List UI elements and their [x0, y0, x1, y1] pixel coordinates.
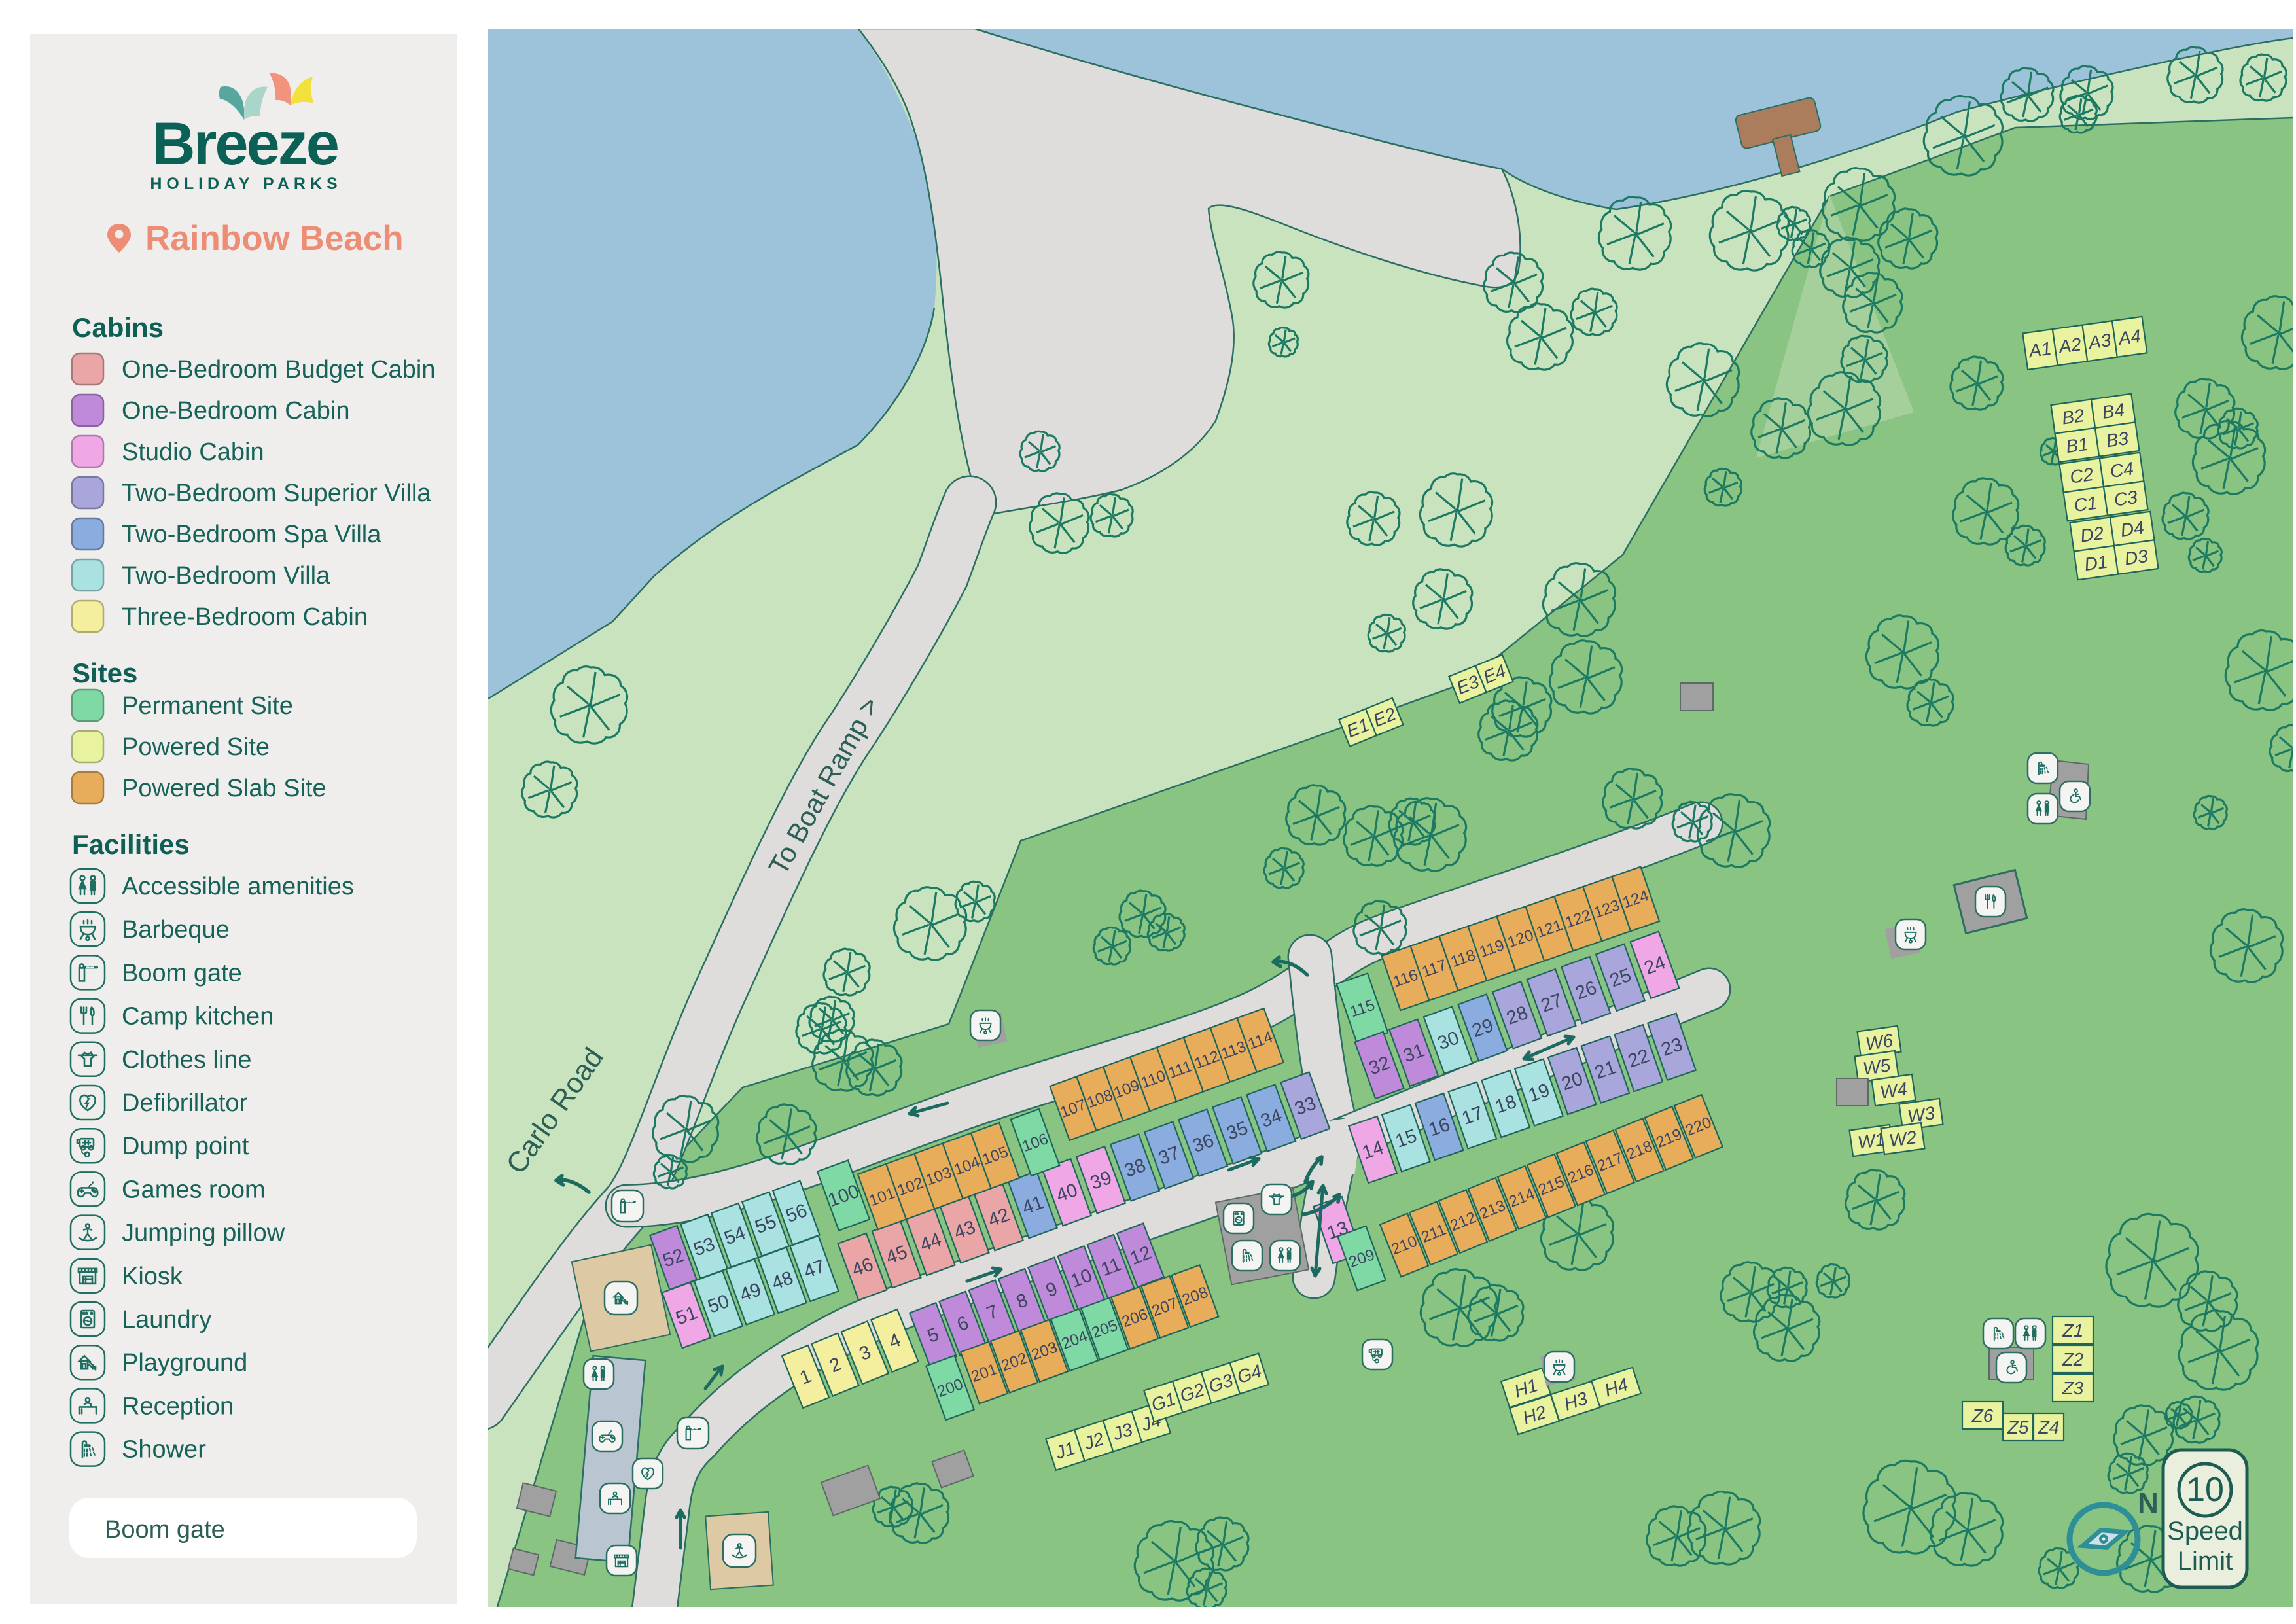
- svg-text:C1: C1: [2073, 493, 2099, 516]
- svg-text:HOLIDAY PARKS: HOLIDAY PARKS: [150, 175, 342, 193]
- svg-text:A3: A3: [2086, 330, 2113, 353]
- svg-text:Breeze: Breeze: [152, 111, 338, 177]
- svg-text:Kiosk: Kiosk: [122, 1263, 183, 1290]
- svg-text:B3: B3: [2105, 428, 2130, 451]
- svg-text:One-Bedroom Budget Cabin: One-Bedroom Budget Cabin: [122, 356, 436, 383]
- svg-text:Two-Bedroom Spa Villa: Two-Bedroom Spa Villa: [122, 521, 381, 548]
- svg-text:Playground: Playground: [122, 1349, 247, 1377]
- svg-text:Rainbow Beach: Rainbow Beach: [145, 219, 404, 258]
- svg-text:B1: B1: [2064, 434, 2089, 457]
- svg-text:Reception: Reception: [122, 1392, 234, 1420]
- svg-text:N: N: [2138, 1487, 2159, 1519]
- svg-text:C2: C2: [2068, 464, 2094, 487]
- svg-text:Studio Cabin: Studio Cabin: [122, 438, 264, 466]
- svg-text:C4: C4: [2109, 458, 2135, 482]
- svg-text:W5: W5: [1862, 1055, 1892, 1079]
- svg-text:Defibrillator: Defibrillator: [122, 1089, 248, 1117]
- svg-text:Z2: Z2: [2062, 1349, 2084, 1369]
- svg-text:C3: C3: [2113, 487, 2139, 510]
- svg-text:Speed: Speed: [2167, 1517, 2243, 1545]
- svg-text:Games room: Games room: [122, 1176, 266, 1203]
- svg-text:Facilities: Facilities: [72, 829, 190, 860]
- svg-text:Two-Bedroom Villa: Two-Bedroom Villa: [122, 562, 330, 590]
- svg-text:Barbeque: Barbeque: [122, 916, 230, 944]
- svg-text:Accessible amenities: Accessible amenities: [122, 873, 354, 900]
- svg-text:B4: B4: [2101, 399, 2126, 422]
- svg-text:W4: W4: [1879, 1078, 1909, 1103]
- svg-text:Permanent Site: Permanent Site: [122, 692, 293, 720]
- svg-text:Z5: Z5: [2007, 1417, 2029, 1438]
- svg-text:D2: D2: [2079, 523, 2105, 546]
- svg-text:Sites: Sites: [72, 658, 137, 688]
- svg-text:Dump point: Dump point: [122, 1133, 249, 1160]
- svg-text:Boom gate: Boom gate: [122, 959, 242, 987]
- svg-text:D3: D3: [2123, 546, 2149, 569]
- svg-text:A2: A2: [2057, 334, 2083, 357]
- svg-text:Three-Bedroom Cabin: Three-Bedroom Cabin: [122, 603, 368, 631]
- svg-text:Z3: Z3: [2062, 1378, 2084, 1398]
- svg-text:Boom gate: Boom gate: [105, 1516, 225, 1544]
- svg-text:Laundry: Laundry: [122, 1306, 211, 1333]
- svg-text:Z4: Z4: [2038, 1417, 2060, 1438]
- svg-text:D1: D1: [2083, 552, 2110, 575]
- svg-text:Powered Slab Site: Powered Slab Site: [122, 775, 327, 802]
- svg-text:10: 10: [2186, 1471, 2224, 1509]
- svg-text:Z1: Z1: [2062, 1320, 2084, 1341]
- svg-text:Two-Bedroom Superior Villa: Two-Bedroom Superior Villa: [122, 480, 431, 507]
- svg-text:Shower: Shower: [122, 1436, 206, 1464]
- svg-text:Cabins: Cabins: [72, 312, 164, 343]
- svg-text:A1: A1: [2026, 338, 2053, 362]
- svg-text:Powered Site: Powered Site: [122, 733, 270, 761]
- svg-text:W2: W2: [1888, 1127, 1918, 1151]
- svg-text:Z6: Z6: [1971, 1405, 1994, 1426]
- svg-text:W6: W6: [1864, 1030, 1894, 1054]
- svg-text:A4: A4: [2116, 326, 2142, 349]
- svg-text:Camp kitchen: Camp kitchen: [122, 1003, 274, 1031]
- svg-text:Clothes line: Clothes line: [122, 1046, 252, 1074]
- svg-text:Limit: Limit: [2178, 1547, 2233, 1576]
- svg-text:Jumping pillow: Jumping pillow: [122, 1220, 285, 1247]
- svg-text:B2: B2: [2060, 405, 2086, 429]
- svg-text:D4: D4: [2119, 517, 2146, 540]
- svg-text:One-Bedroom Cabin: One-Bedroom Cabin: [122, 397, 350, 425]
